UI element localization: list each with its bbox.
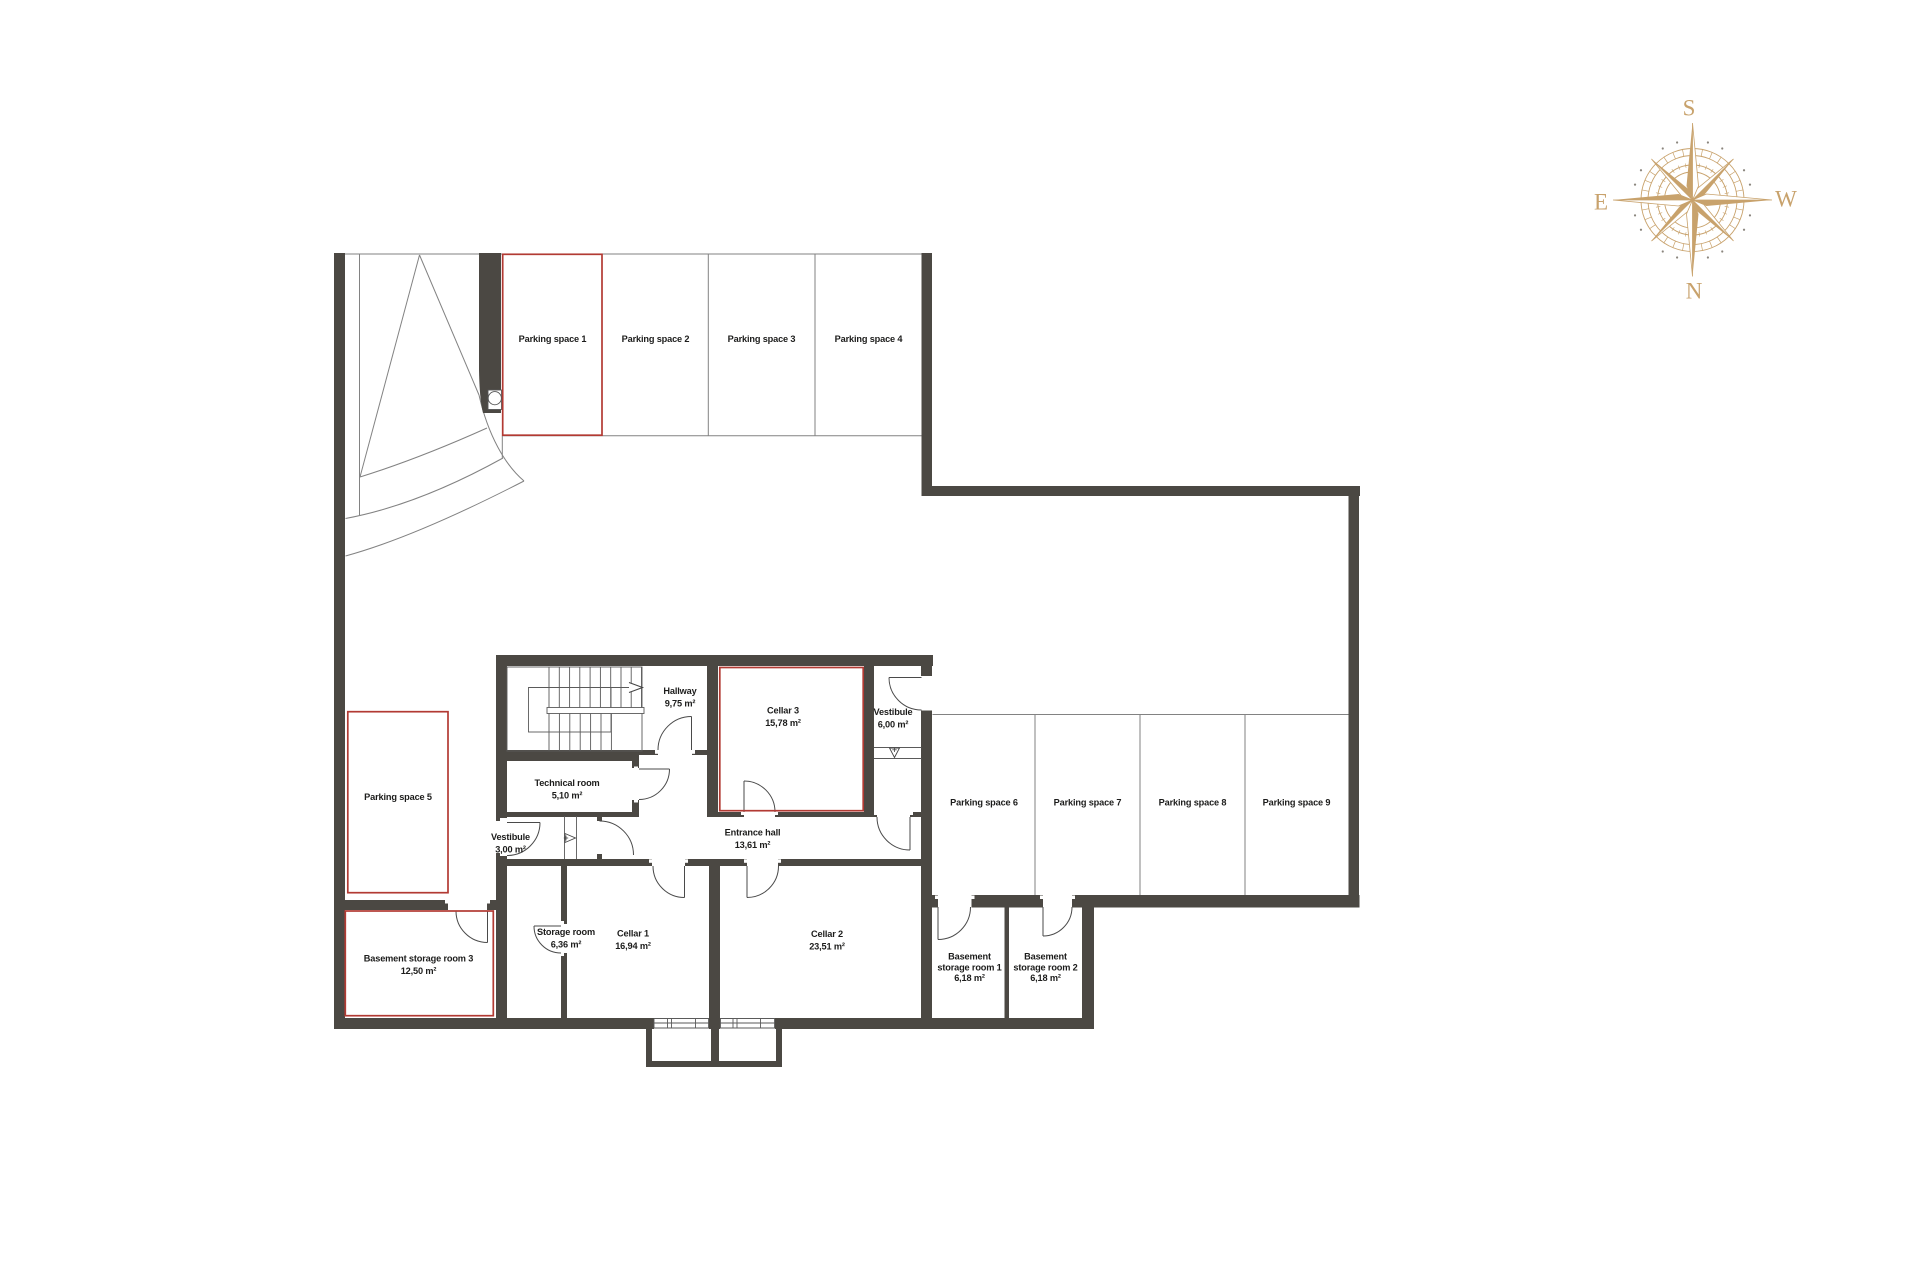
- svg-text:Cellar 3: Cellar 3: [767, 706, 799, 716]
- svg-text:Parking space 7: Parking space 7: [1054, 798, 1122, 808]
- svg-text:16,94 m²: 16,94 m²: [615, 941, 651, 951]
- svg-text:13,61 m²: 13,61 m²: [735, 840, 771, 850]
- svg-text:S: S: [1683, 96, 1696, 121]
- svg-text:6,18 m²: 6,18 m²: [954, 973, 985, 983]
- svg-text:Vestibule: Vestibule: [874, 707, 913, 717]
- svg-text:Basement storage room 3: Basement storage room 3: [364, 954, 473, 964]
- svg-text:E: E: [1594, 190, 1608, 215]
- svg-text:5,10 m²: 5,10 m²: [552, 791, 583, 801]
- svg-text:Parking space 2: Parking space 2: [622, 334, 690, 344]
- svg-text:W: W: [1775, 187, 1797, 212]
- svg-text:Parking space 9: Parking space 9: [1263, 798, 1331, 808]
- svg-text:12,50 m²: 12,50 m²: [401, 966, 437, 976]
- svg-text:15,78 m²: 15,78 m²: [765, 718, 801, 728]
- svg-text:Basement: Basement: [948, 952, 991, 962]
- svg-text:Parking space 5: Parking space 5: [364, 792, 432, 802]
- svg-text:Basement: Basement: [1024, 952, 1067, 962]
- svg-text:N: N: [1686, 279, 1703, 304]
- svg-text:6,36 m²: 6,36 m²: [551, 940, 582, 950]
- svg-text:9,75 m²: 9,75 m²: [665, 699, 696, 709]
- svg-text:Entrance hall: Entrance hall: [725, 828, 781, 838]
- svg-text:Cellar 1: Cellar 1: [617, 929, 649, 939]
- svg-text:23,51 m²: 23,51 m²: [809, 942, 845, 952]
- svg-text:Hallway: Hallway: [663, 686, 697, 696]
- svg-text:Cellar 2: Cellar 2: [811, 929, 843, 939]
- svg-text:Parking space 3: Parking space 3: [728, 334, 796, 344]
- svg-text:Parking space 6: Parking space 6: [950, 798, 1018, 808]
- svg-text:Technical room: Technical room: [534, 778, 599, 788]
- svg-text:Storage room: Storage room: [537, 927, 595, 937]
- svg-text:3,00 m²: 3,00 m²: [495, 845, 526, 855]
- svg-text:Parking space 8: Parking space 8: [1159, 798, 1227, 808]
- svg-text:Parking space 1: Parking space 1: [519, 334, 587, 344]
- svg-text:6,00 m²: 6,00 m²: [878, 720, 909, 730]
- svg-text:Parking space 4: Parking space 4: [835, 334, 904, 344]
- svg-text:storage room 2: storage room 2: [1013, 962, 1077, 972]
- svg-text:6,18 m²: 6,18 m²: [1030, 973, 1061, 983]
- svg-text:Vestibule: Vestibule: [491, 832, 530, 842]
- svg-text:storage room 1: storage room 1: [937, 962, 1001, 972]
